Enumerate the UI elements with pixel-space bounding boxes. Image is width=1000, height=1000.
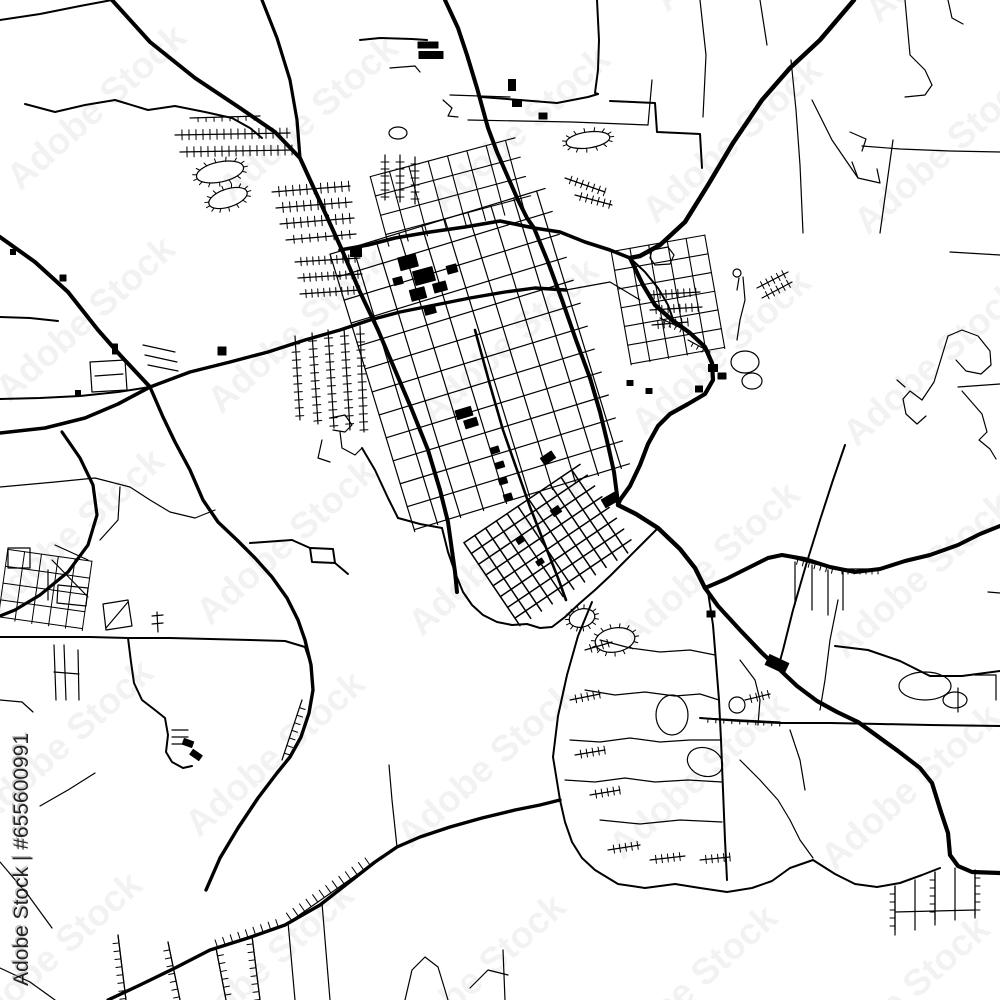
- svg-text:Adobe Stock: Adobe Stock: [601, 684, 797, 866]
- svg-text:Adobe Stock: Adobe Stock: [199, 238, 395, 420]
- city-road-map: Adobe StockAdobe StockAdobe StockAdobe S…: [0, 0, 1000, 1000]
- svg-text:Adobe Stock: Adobe Stock: [590, 896, 786, 1000]
- svg-text:Adobe Stock: Adobe Stock: [857, 0, 1000, 30]
- svg-text:Adobe Stock: Adobe Stock: [389, 673, 585, 855]
- svg-text:Adobe Stock: Adobe Stock: [623, 261, 819, 443]
- watermark-id-text: Adobe Stock | #655600991: [10, 733, 33, 986]
- svg-text:Adobe Stock: Adobe Stock: [422, 38, 618, 220]
- svg-text:Adobe Stock: Adobe Stock: [645, 0, 841, 19]
- svg-text:Adobe Stock: Adobe Stock: [433, 0, 629, 8]
- svg-text:Adobe Stock: Adobe Stock: [177, 662, 373, 844]
- stock-map-image: Adobe StockAdobe StockAdobe StockAdobe S…: [0, 0, 1000, 1000]
- adobe-stock-id-watermark: Adobe Stock | #655600991 Adobe Stock | #…: [9, 732, 34, 987]
- svg-text:Adobe Stock: Adobe Stock: [166, 874, 362, 1000]
- svg-text:Adobe Stock: Adobe Stock: [824, 484, 1000, 666]
- svg-text:Adobe Stock: Adobe Stock: [801, 907, 997, 1000]
- svg-text:Adobe Stock: Adobe Stock: [835, 272, 1000, 454]
- svg-text:Adobe Stock: Adobe Stock: [612, 473, 808, 655]
- svg-text:Adobe Stock: Adobe Stock: [0, 439, 172, 621]
- svg-text:Adobe Stock: Adobe Stock: [634, 49, 830, 231]
- svg-text:Adobe Stock: Adobe Stock: [210, 27, 406, 209]
